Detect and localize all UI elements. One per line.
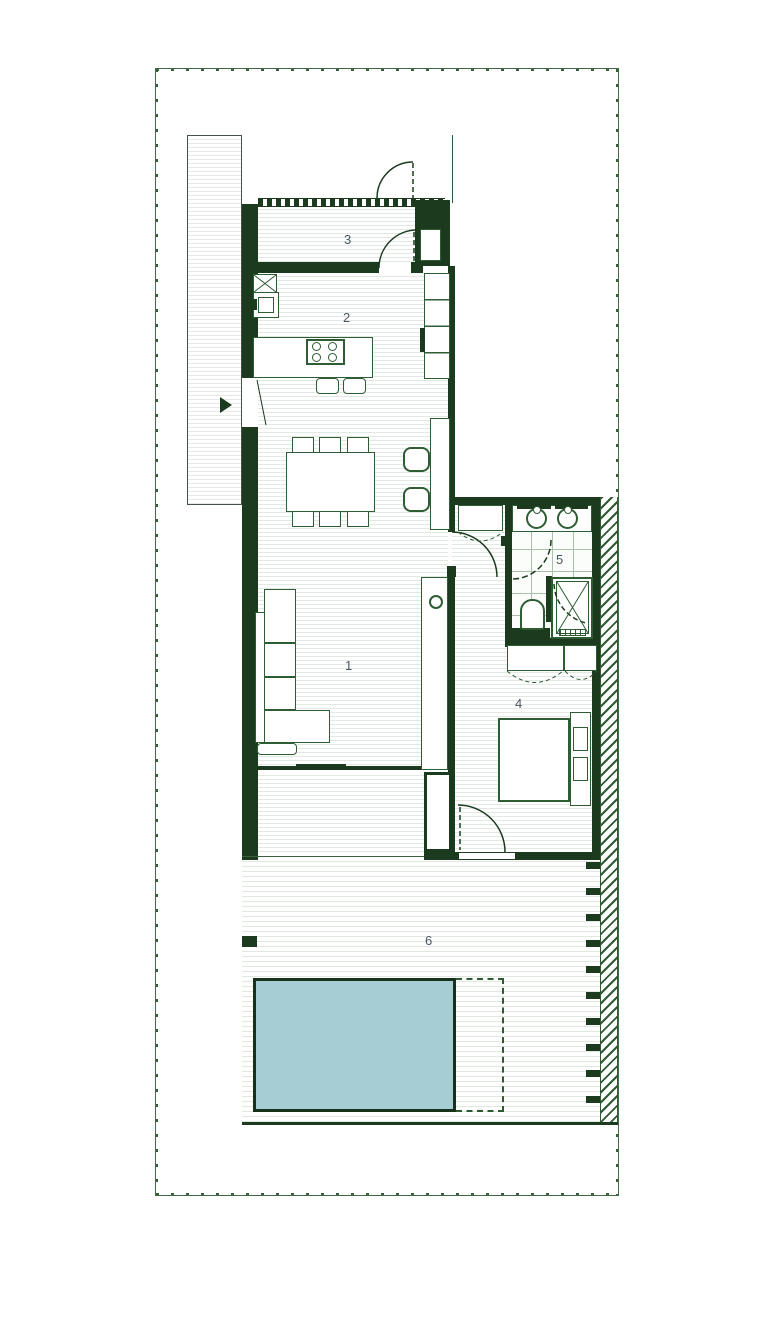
sofa-corner-module (264, 710, 330, 743)
bed-pillow-1 (573, 727, 588, 751)
deck-south-edge (242, 1122, 618, 1125)
hall-sideboard (458, 505, 503, 531)
door-jamb-bath (501, 536, 510, 546)
boundary-ticks-left (156, 69, 158, 1195)
sofa-seat-1 (264, 643, 296, 677)
entry-door-jamb (411, 262, 423, 273)
toilet (520, 599, 545, 630)
dining-chair-1 (292, 437, 314, 453)
bathroom-north-wall (450, 497, 600, 505)
armchair-2 (403, 487, 430, 512)
room-label-terrace: 6 (425, 934, 432, 947)
burner-1 (312, 342, 321, 351)
burner-4 (328, 353, 337, 362)
deck-north-edge-line (242, 856, 424, 857)
kitchen-pantry-unit (253, 274, 277, 293)
dining-chair-5 (319, 511, 341, 527)
room-label-kitchen: 2 (343, 311, 350, 324)
bed-mattress (498, 718, 570, 802)
dining-console (430, 418, 450, 530)
dining-table (286, 452, 375, 512)
kitchen-tall-cabinets (424, 273, 450, 379)
kitchen-tap-stub (246, 299, 257, 310)
covered-terrace-floor (258, 772, 424, 852)
deck-joist-marks (586, 862, 600, 1116)
floor-plan-canvas: 1 2 3 4 5 6 (0, 0, 768, 1344)
sink-faucet-2 (564, 506, 572, 514)
burner-2 (328, 342, 337, 351)
kitchen-sink-inner (258, 297, 274, 313)
dining-chair-2 (319, 437, 341, 453)
driveway (187, 135, 242, 505)
armchair-1 (403, 447, 430, 472)
room-label-bedroom: 4 (515, 697, 522, 710)
pool (253, 978, 456, 1112)
boundary-ticks-top (156, 69, 618, 71)
boundary-ticks-bottom (156, 1193, 618, 1195)
room-label-bathroom: 5 (556, 553, 563, 566)
glazing-panel-overlap (296, 764, 346, 768)
courtyard-fence-line (452, 135, 453, 203)
bedroom-door-threshold (459, 852, 515, 860)
sink-faucet-1 (533, 506, 541, 514)
cabinet-handle-strip (420, 328, 425, 352)
shower-tray (556, 581, 589, 634)
west-wall-door-gap (242, 378, 258, 427)
entry-storage-box (420, 229, 441, 261)
dining-chair-3 (347, 437, 369, 453)
right-hatch-strip (600, 497, 618, 1124)
wardrobe (507, 645, 597, 671)
sofa-chaise (264, 589, 296, 643)
terrace-pillar (424, 772, 452, 852)
east-exterior-wall (592, 497, 600, 860)
sofa-seat-2 (264, 677, 296, 710)
burner-3 (312, 353, 321, 362)
vanity-counter (512, 505, 592, 532)
door-jamb-hall (447, 566, 456, 577)
sofa-ottoman (257, 743, 297, 755)
entry-kitchen-wall (242, 262, 379, 273)
pool-deck-dashed-extension (456, 978, 504, 1112)
room-label-living: 1 (345, 659, 352, 672)
room-label-entry: 3 (344, 233, 351, 246)
bar-stool-1 (316, 378, 339, 394)
deck-wall-stub (242, 936, 257, 947)
bar-stool-2 (343, 378, 366, 394)
bed-pillow-2 (573, 757, 588, 781)
dining-chair-4 (292, 511, 314, 527)
bathroom-west-wall (505, 505, 512, 645)
dining-chair-6 (347, 511, 369, 527)
wardrobe-divider (563, 646, 565, 670)
entrance-arrow-icon (220, 397, 232, 413)
media-unit-detail-circle (429, 595, 443, 609)
shower-drain (559, 629, 586, 636)
